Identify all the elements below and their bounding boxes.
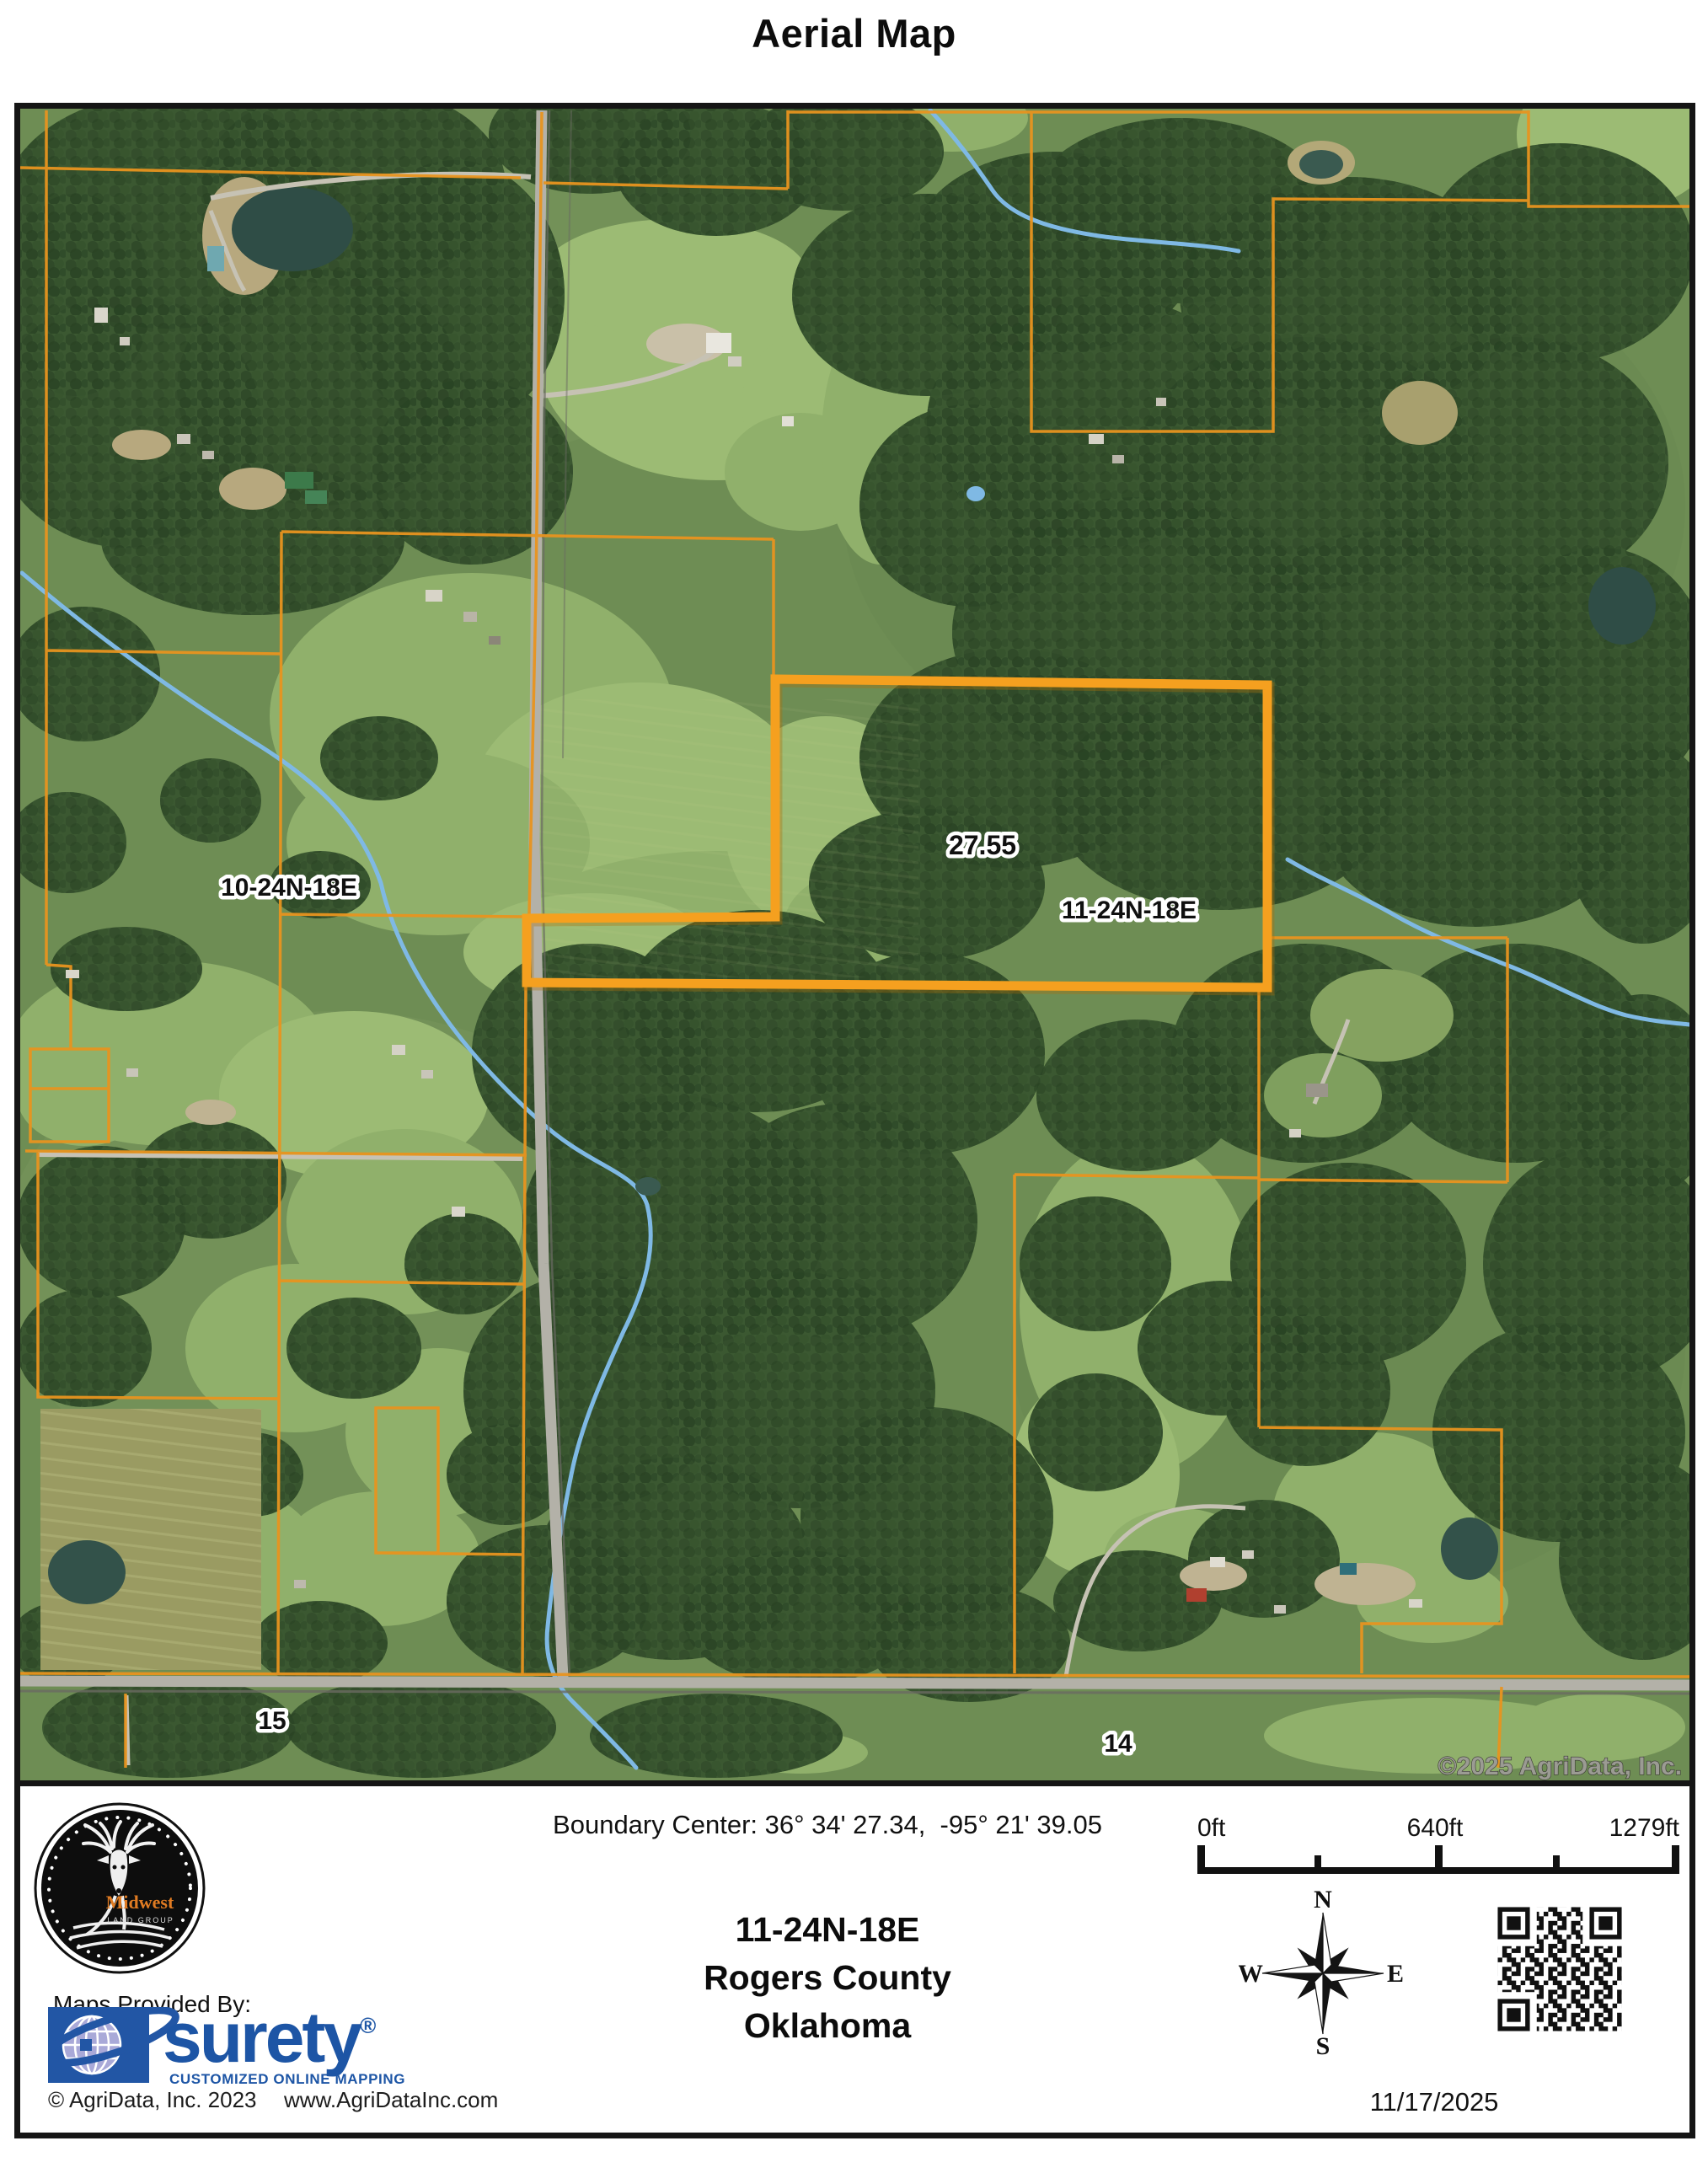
provider-copyright: © AgriData, Inc. 2023 xyxy=(48,2087,257,2113)
compass-north-label: N xyxy=(1314,1886,1332,1913)
section-label-sw: 15 xyxy=(258,1707,286,1735)
section-label-main: 11-24N-18E xyxy=(1062,897,1197,924)
page-title: Aerial Map xyxy=(0,10,1708,56)
location-township: 11-24N-18E xyxy=(704,1906,951,1954)
surety-wordmark: surety® xyxy=(163,2002,376,2073)
scale-bar xyxy=(1196,1839,1684,1879)
aerial-map: 27.55 11-24N-18E 10-24N-18E 15 14 ©2025 … xyxy=(14,103,1695,1786)
boundary-center-coordinates: Boundary Center: 36° 34' 27.34, -95° 21'… xyxy=(553,1810,1102,1840)
location-state: Oklahoma xyxy=(704,2002,951,2050)
compass-west-label: W xyxy=(1239,1960,1263,1988)
location-block: 11-24N-18E Rogers County Oklahoma xyxy=(704,1906,951,2050)
aerial-photo: 27.55 11-24N-18E 10-24N-18E 15 14 ©2025 … xyxy=(20,109,1689,1780)
map-date: 11/17/2025 xyxy=(1370,2087,1499,2117)
logo-brand-text: Midwest xyxy=(106,1892,174,1913)
logo-sub-text: LAND GROUP xyxy=(107,1916,174,1924)
surety-brand-text: surety xyxy=(163,1998,360,2077)
compass-rose-icon: N S W E xyxy=(1239,1885,1407,2062)
location-county: Rogers County xyxy=(704,1954,951,2002)
surety-tagline: CUSTOMIZED ONLINE MAPPING xyxy=(169,2071,405,2088)
map-copyright-overlay: ©2025 AgriData, Inc. xyxy=(1438,1753,1682,1780)
compass-east-label: E xyxy=(1387,1960,1404,1988)
section-label-se: 14 xyxy=(1104,1730,1132,1758)
road-east-west xyxy=(20,1681,1689,1685)
parcel-acreage-label: 27.55 xyxy=(949,830,1016,860)
compass-south-label: S xyxy=(1316,2032,1331,2060)
registered-mark: ® xyxy=(360,2013,376,2038)
midwest-land-group-logo: Midwest LAND GROUP xyxy=(33,1801,206,1975)
map-footer: Midwest LAND GROUP Maps Provided By: sur… xyxy=(14,1786,1695,2138)
section-label-nw: 10-24N-18E xyxy=(221,874,357,902)
qr-code xyxy=(1493,1903,1626,2036)
provider-website: www.AgriDataInc.com xyxy=(284,2087,498,2113)
